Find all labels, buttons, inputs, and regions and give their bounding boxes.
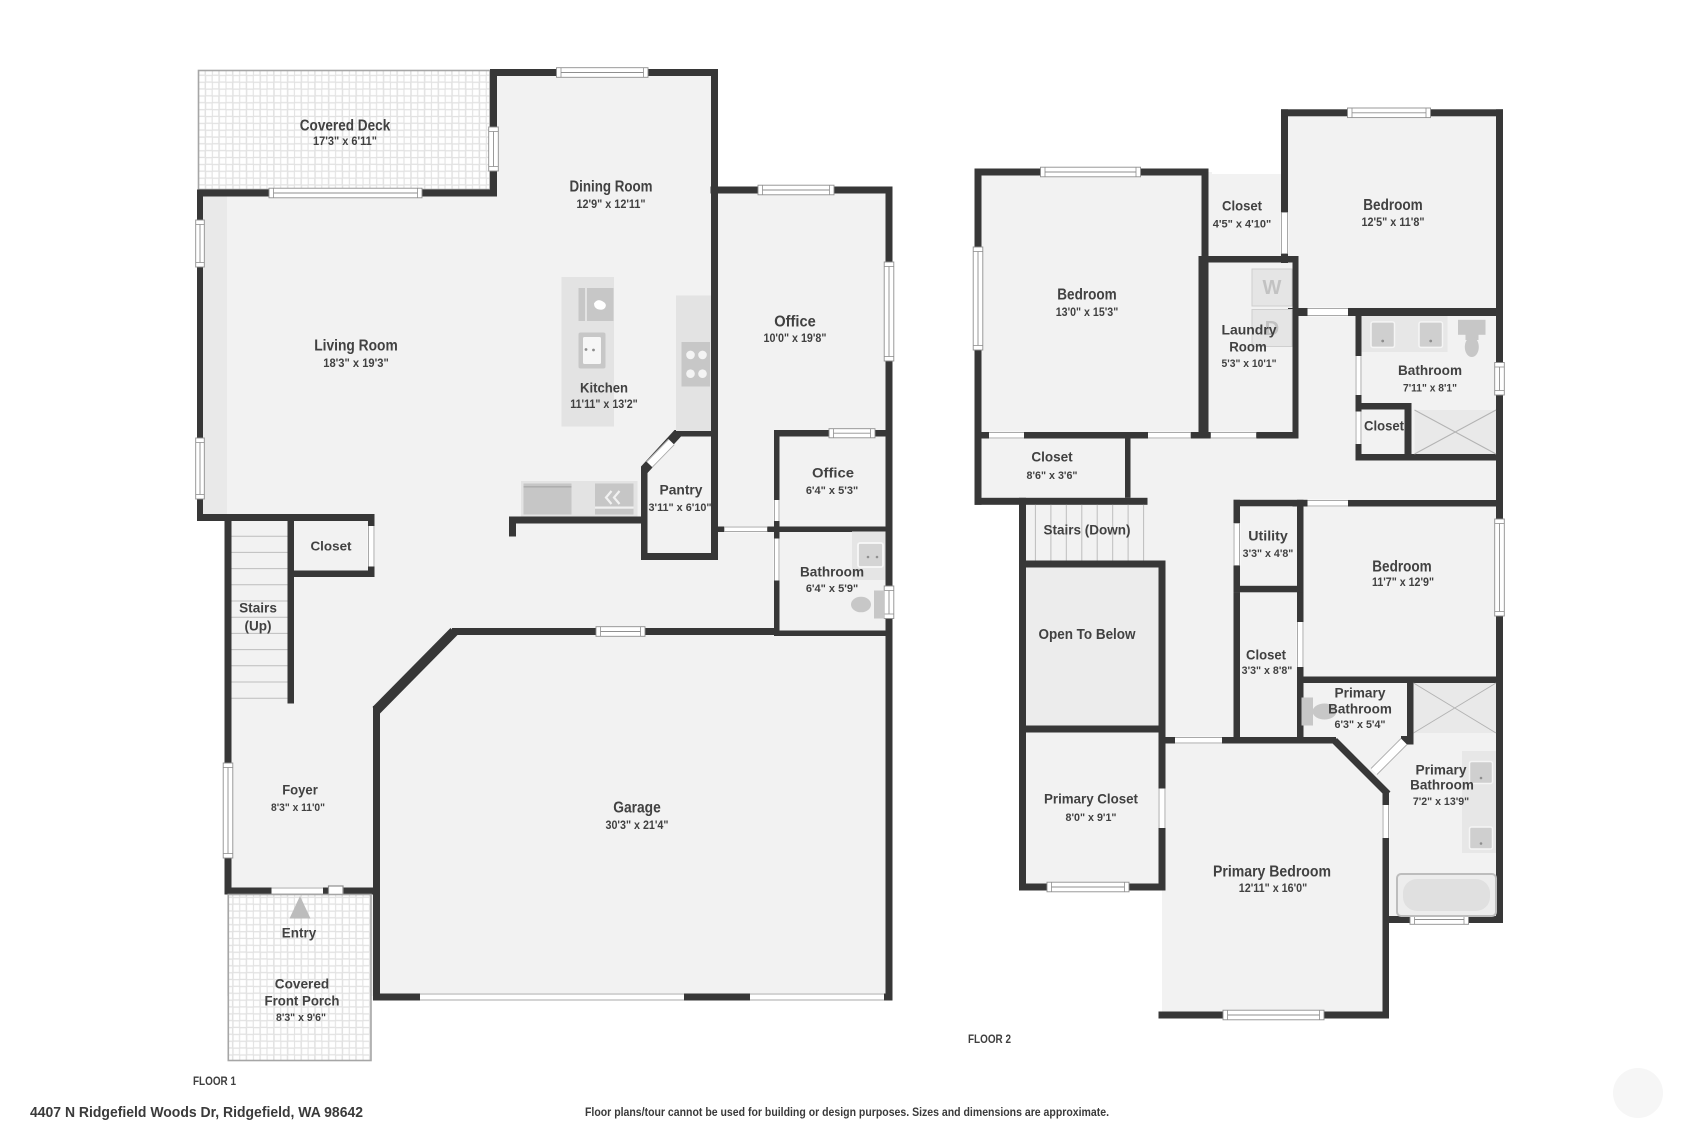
svg-text:(Up): (Up)	[245, 619, 272, 634]
svg-text:Entry: Entry	[282, 926, 317, 941]
svg-text:Primary: Primary	[1416, 763, 1467, 778]
svg-text:Bathroom: Bathroom	[800, 565, 864, 580]
svg-text:7'11" x 8'1": 7'11" x 8'1"	[1403, 382, 1457, 394]
svg-text:Living Room: Living Room	[314, 337, 398, 354]
svg-text:3'3" x 8'8": 3'3" x 8'8"	[1242, 665, 1293, 677]
svg-text:6'4" x 5'3": 6'4" x 5'3"	[806, 485, 858, 497]
svg-text:3'11" x 6'10": 3'11" x 6'10"	[649, 502, 712, 514]
svg-text:Bedroom: Bedroom	[1372, 558, 1432, 575]
svg-text:Open To Below: Open To Below	[1039, 627, 1137, 643]
svg-text:7'2" x 13'9": 7'2" x 13'9"	[1413, 796, 1469, 808]
svg-text:Closet: Closet	[1222, 199, 1262, 214]
svg-text:8'3" x 9'6": 8'3" x 9'6"	[276, 1012, 326, 1024]
svg-text:Stairs: Stairs	[239, 601, 277, 616]
svg-text:17'3" x 6'11": 17'3" x 6'11"	[313, 134, 377, 148]
svg-text:Stairs (Down): Stairs (Down)	[1044, 523, 1131, 538]
svg-text:FLOOR 1: FLOOR 1	[193, 1076, 237, 1088]
svg-text:Laundry: Laundry	[1222, 323, 1277, 338]
svg-text:6'3" x 5'4": 6'3" x 5'4"	[1335, 719, 1386, 731]
svg-text:Bathroom: Bathroom	[1328, 702, 1392, 717]
svg-text:4407 N Ridgefield Woods Dr, Ri: 4407 N Ridgefield Woods Dr, Ridgefield, …	[30, 1104, 363, 1121]
svg-text:Dining Room: Dining Room	[570, 178, 653, 195]
svg-text:Pantry: Pantry	[660, 483, 703, 498]
svg-text:30'3" x 21'4": 30'3" x 21'4"	[606, 818, 669, 832]
svg-text:6'4" x 5'9": 6'4" x 5'9"	[806, 583, 858, 595]
svg-text:Floor plans/tour cannot be use: Floor plans/tour cannot be used for buil…	[585, 1107, 1109, 1119]
svg-text:10'0" x 19'8": 10'0" x 19'8"	[764, 331, 827, 345]
svg-text:12'11" x 16'0": 12'11" x 16'0"	[1239, 881, 1308, 895]
svg-text:11'7" x 12'9": 11'7" x 12'9"	[1372, 575, 1434, 589]
svg-text:Office: Office	[774, 313, 816, 330]
svg-text:3'3" x 4'8": 3'3" x 4'8"	[1243, 548, 1294, 560]
svg-text:Closet: Closet	[1031, 450, 1073, 465]
svg-text:Bathroom: Bathroom	[1410, 778, 1474, 793]
svg-text:Primary: Primary	[1335, 686, 1386, 701]
svg-text:Front Porch: Front Porch	[265, 994, 340, 1009]
svg-text:13'0" x 15'3": 13'0" x 15'3"	[1056, 305, 1119, 319]
svg-text:FLOOR 2: FLOOR 2	[968, 1034, 1011, 1046]
svg-text:W: W	[1263, 277, 1282, 299]
svg-text:Kitchen: Kitchen	[580, 381, 628, 396]
svg-text:8'0" x 9'1": 8'0" x 9'1"	[1066, 812, 1117, 824]
svg-text:11'11" x 13'2": 11'11" x 13'2"	[570, 397, 638, 411]
svg-text:Bedroom: Bedroom	[1363, 197, 1423, 214]
svg-text:Covered Deck: Covered Deck	[300, 117, 391, 134]
svg-text:Bathroom: Bathroom	[1398, 363, 1462, 378]
svg-text:Closet: Closet	[311, 539, 353, 554]
svg-text:Covered: Covered	[275, 977, 329, 992]
svg-text:4'5" x 4'10": 4'5" x 4'10"	[1213, 218, 1271, 230]
svg-text:Office: Office	[812, 466, 855, 481]
svg-text:Closet: Closet	[1246, 648, 1286, 663]
svg-text:18'3" x 19'3": 18'3" x 19'3"	[323, 356, 389, 370]
svg-text:Room: Room	[1229, 340, 1267, 355]
svg-text:12'5" x 11'8": 12'5" x 11'8"	[1362, 215, 1425, 229]
svg-text:Bedroom: Bedroom	[1057, 286, 1117, 303]
svg-text:Foyer: Foyer	[282, 783, 318, 798]
svg-text:8'6" x 3'6": 8'6" x 3'6"	[1027, 470, 1078, 482]
svg-text:5'3" x 10'1": 5'3" x 10'1"	[1222, 358, 1277, 370]
svg-text:Primary Bedroom: Primary Bedroom	[1213, 863, 1331, 880]
svg-text:8'3" x 11'0": 8'3" x 11'0"	[271, 802, 325, 814]
svg-text:Closet: Closet	[1364, 419, 1404, 434]
svg-text:Primary Closet: Primary Closet	[1044, 792, 1138, 807]
svg-text:Utility: Utility	[1248, 529, 1288, 544]
svg-text:Garage: Garage	[613, 799, 661, 816]
svg-text:12'9" x 12'11": 12'9" x 12'11"	[577, 197, 646, 211]
